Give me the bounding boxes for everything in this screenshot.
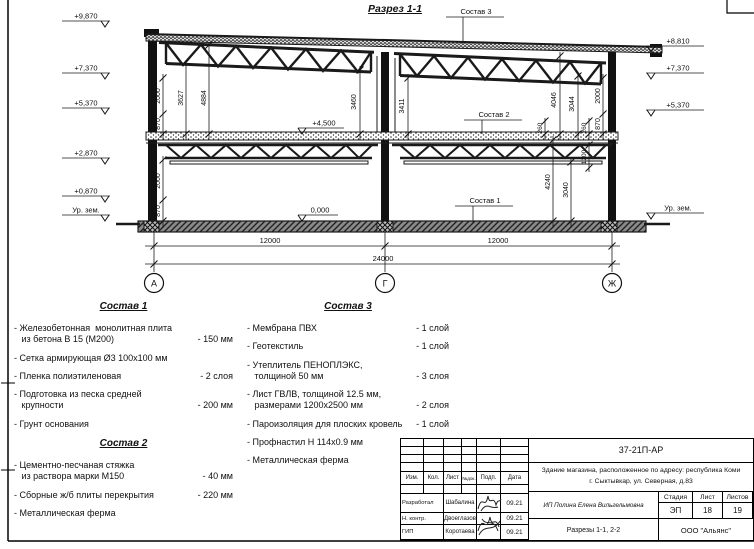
col-list: Лист: [444, 472, 462, 485]
item-name: - Сетка армирующая Ø3 100х100 мм: [14, 353, 168, 364]
item-name: - Металлическая ферма: [14, 508, 116, 519]
item-name: - Профнастил Н 114х0.9 мм: [247, 437, 363, 448]
list-item: - Цементно-песчаная стяжка из раствора м…: [14, 460, 233, 483]
axis-label-a: А: [151, 279, 157, 289]
stage-table: Стадия Лист Листов ЭП 18 19: [659, 492, 753, 518]
dim-870-a: 870: [155, 118, 162, 130]
sheet-label: Лист: [693, 492, 723, 503]
item-name: - Металлическая ферма: [247, 455, 349, 466]
elevation-right-2: +7,370: [666, 64, 689, 73]
floor-truss-2: [392, 145, 612, 164]
stage-value: ЭП: [659, 503, 693, 518]
stamp-right: 37-21П-АР Здание магазина, расположенное…: [529, 439, 753, 540]
span-dim-1: 12000: [260, 236, 281, 245]
roof-truss-2: [394, 54, 606, 85]
floor-slab: [146, 132, 618, 140]
dim-1200: 1200: [581, 149, 588, 164]
list-title: Состав 1: [14, 301, 233, 312]
axis-bubbles: А Г Ж: [145, 274, 622, 293]
item-value: - 2 слоя: [200, 371, 233, 382]
dim-870-b: 870: [595, 118, 602, 130]
list-item: - Железобетонная монолитная плита из бет…: [14, 323, 233, 346]
revision-table: Изм. Кол. Лист №док. Подп. Дата Разработ…: [401, 439, 529, 540]
list-item: - Грунт основания: [14, 419, 233, 430]
col-podp: Подп.: [477, 472, 501, 485]
sheet-value: 18: [693, 503, 723, 518]
item-value: - 40 мм: [203, 471, 233, 482]
dim-2000-b: 2000: [595, 88, 602, 104]
leader-sostav2: Состав 2: [478, 110, 509, 119]
elevation-left-1: +9,870: [74, 12, 97, 21]
drawing-sheet: { "title": "Разрез 1-1", "drawing": { "a…: [0, 0, 754, 549]
leader-sostav1: Состав 1: [469, 196, 500, 205]
corner-stamp-box: [727, 0, 754, 13]
col-izm: Изм.: [401, 472, 424, 485]
footing-G: [377, 221, 393, 232]
item-value: - 150 мм: [198, 334, 233, 345]
dim-3460: 3460: [351, 94, 358, 110]
item-name: - Грунт основания: [14, 419, 89, 430]
list-item: - Пароизоляция для плоских кровель- 1 сл…: [247, 419, 449, 430]
dim-3627: 3627: [178, 90, 185, 106]
item-name: - Цементно-песчаная стяжка из раствора м…: [14, 460, 134, 483]
item-name: - Подготовка из песка средней крупности: [14, 389, 142, 412]
list-title: Состав 3: [247, 301, 449, 312]
item-value: - 1 слой: [416, 323, 449, 334]
designer-name: ИП Полина Елена Вильгельмовна: [529, 492, 659, 518]
dim-2000-a: 2000: [155, 88, 162, 104]
footing-A: [144, 221, 159, 232]
signature-cell: [477, 513, 501, 525]
floor-truss-1: [158, 145, 378, 164]
list-title: Состав 2: [14, 438, 233, 449]
title-block: Изм. Кол. Лист №док. Подп. Дата Разработ…: [400, 438, 754, 541]
elevation-right-1: +8,810: [666, 37, 689, 46]
row-role: Н. контр.: [401, 513, 444, 525]
drawing-title: Разрез 1-1: [330, 3, 460, 15]
list-item: - Геотекстиль- 1 слой: [247, 341, 449, 352]
list-item: - Сборные ж/б плиты перекрытия- 220 мм: [14, 490, 233, 501]
ground-level-left: Ур. зем.: [72, 206, 100, 215]
leader-sostav3: Состав 3: [460, 7, 491, 16]
dim-260-a: 260: [537, 122, 544, 133]
col-ndoc: №док.: [462, 472, 477, 485]
dim-2000-c: 2000: [155, 173, 162, 189]
organization-name: ООО "Альянс": [659, 519, 753, 541]
stage-label: Стадия: [659, 492, 693, 503]
dim-260-b: 260: [581, 122, 588, 133]
list-item: - Мембрана ПВХ- 1 слой: [247, 323, 449, 334]
row-date: 09.21: [501, 513, 529, 525]
material-list-2: Состав 2 - Цементно-песчаная стяжка из р…: [14, 438, 233, 526]
list-item: - Лист ГВЛВ, толщиной 12.5 мм, размерами…: [247, 389, 449, 412]
dim-4240: 4240: [545, 174, 552, 190]
elevation-left-2: +7,370: [74, 64, 97, 73]
axis-label-g: Г: [383, 279, 388, 289]
dim-870-c: 870: [155, 205, 162, 217]
elevation-left-5: +0,870: [74, 187, 97, 196]
dim-4046: 4046: [551, 92, 558, 108]
item-value: - 1 слой: [416, 341, 449, 352]
item-name: - Мембрана ПВХ: [247, 323, 317, 334]
dim-3040: 3040: [563, 182, 570, 198]
span-dim-total: 24000: [373, 254, 394, 263]
item-name: - Пароизоляция для плоских кровель: [247, 419, 402, 430]
axis-label-j: Ж: [608, 279, 617, 289]
signature-cell: [477, 525, 501, 540]
item-name: - Сборные ж/б плиты перекрытия: [14, 490, 154, 501]
item-value: - 3 слоя: [416, 371, 449, 382]
elevation-left-4: +2,870: [74, 149, 97, 158]
object-description: Здание магазина, расположенное по адресу…: [529, 463, 753, 492]
row-role: ГИП: [401, 525, 444, 540]
level-floor0: 0,000: [311, 206, 330, 215]
col-kol: Кол.: [424, 472, 444, 485]
item-name: - Геотекстиль: [247, 341, 303, 352]
elevation-right-3: +5,370: [666, 101, 689, 110]
ground-level-right: Ур. зем.: [664, 204, 692, 213]
list-item: - Подготовка из песка средней крупности-…: [14, 389, 233, 412]
list-item: - Утеплитель ПЕНОПЛЭКС, толщиной 50 мм- …: [247, 360, 449, 383]
dim-3411: 3411: [399, 98, 406, 113]
dim-3044: 3044: [569, 96, 576, 112]
list-item: - Сетка армирующая Ø3 100х100 мм: [14, 353, 233, 364]
document-number: 37-21П-АР: [529, 439, 753, 463]
sheet-title: Разрезы 1-1, 2-2: [529, 519, 659, 541]
col-data: Дата: [501, 472, 529, 485]
item-name: - Железобетонная монолитная плита из бет…: [14, 323, 172, 346]
list-item: - Металлическая ферма: [14, 508, 233, 519]
sheets-label: Листов: [723, 492, 753, 503]
vertical-dim-texts: 2000 870 3627 4884 3460 3411 4046 3044 2…: [155, 88, 602, 217]
sheets-value: 19: [723, 503, 753, 518]
row-name: Двоеглазов: [444, 513, 477, 525]
item-name: - Лист ГВЛВ, толщиной 12.5 мм, размерами…: [247, 389, 381, 412]
list-item: - Пленка полиэтиленовая- 2 слоя: [14, 371, 233, 382]
item-value: - 1 слой: [416, 419, 449, 430]
row-name: Коротаева: [444, 525, 477, 540]
item-value: - 200 мм: [198, 400, 233, 411]
item-name: - Пленка полиэтиленовая: [14, 371, 121, 382]
roof-truss-1: [159, 43, 374, 73]
item-value: - 220 мм: [198, 490, 233, 501]
span-dim-2: 12000: [488, 236, 509, 245]
item-value: - 2 слоя: [416, 400, 449, 411]
dim-4884: 4884: [201, 90, 208, 106]
row-name: Шабалина: [444, 494, 477, 513]
level-floor2: +4,500: [312, 119, 335, 128]
row-date: 09.21: [501, 494, 529, 513]
material-list-1: Состав 1 - Железобетонная монолитная пли…: [14, 301, 233, 437]
signature-cell: [477, 494, 501, 513]
footing-J: [601, 221, 617, 232]
row-role: Разработал: [401, 494, 444, 513]
elevation-left-3: +5,370: [74, 99, 97, 108]
row-date: 09.21: [501, 525, 529, 540]
item-name: - Утеплитель ПЕНОПЛЭКС, толщиной 50 мм: [247, 360, 363, 383]
